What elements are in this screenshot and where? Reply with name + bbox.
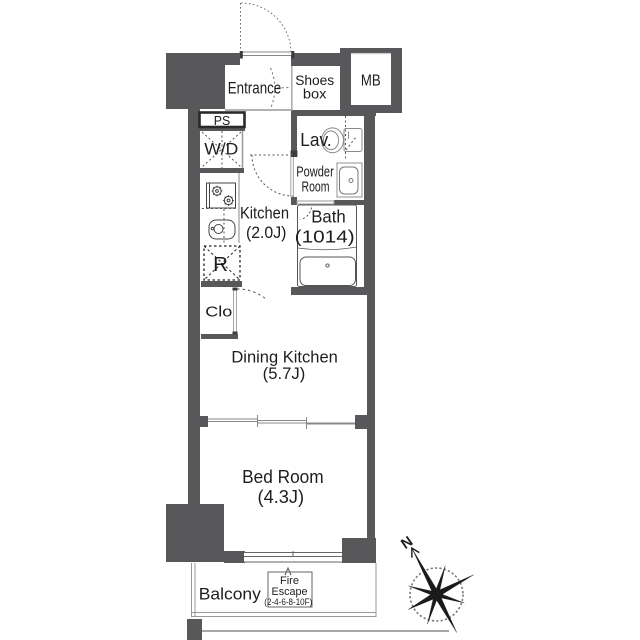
svg-text:Powder: Powder xyxy=(296,164,334,180)
svg-text:Bath: Bath xyxy=(311,207,346,227)
svg-text:W/D: W/D xyxy=(204,140,238,158)
svg-text:(4.3J): (4.3J) xyxy=(258,486,305,507)
svg-text:Balcony: Balcony xyxy=(199,584,262,603)
svg-text:R: R xyxy=(213,253,228,276)
svg-text:Bed Room: Bed Room xyxy=(242,466,324,487)
svg-text:(1014): (1014) xyxy=(295,227,355,247)
svg-text:Room: Room xyxy=(302,179,330,195)
svg-text:PS: PS xyxy=(214,113,231,128)
svg-text:(2-4-6-8-10F): (2-4-6-8-10F) xyxy=(264,597,312,607)
svg-text:(5.7J): (5.7J) xyxy=(263,364,306,383)
svg-text:(2.0J): (2.0J) xyxy=(246,224,287,242)
svg-text:MB: MB xyxy=(361,73,381,90)
svg-text:Clo: Clo xyxy=(205,304,232,321)
svg-text:Lav.: Lav. xyxy=(300,130,332,150)
svg-text:Kitchen: Kitchen xyxy=(240,204,289,222)
svg-text:box: box xyxy=(303,86,327,102)
svg-text:Entrance: Entrance xyxy=(228,78,282,97)
